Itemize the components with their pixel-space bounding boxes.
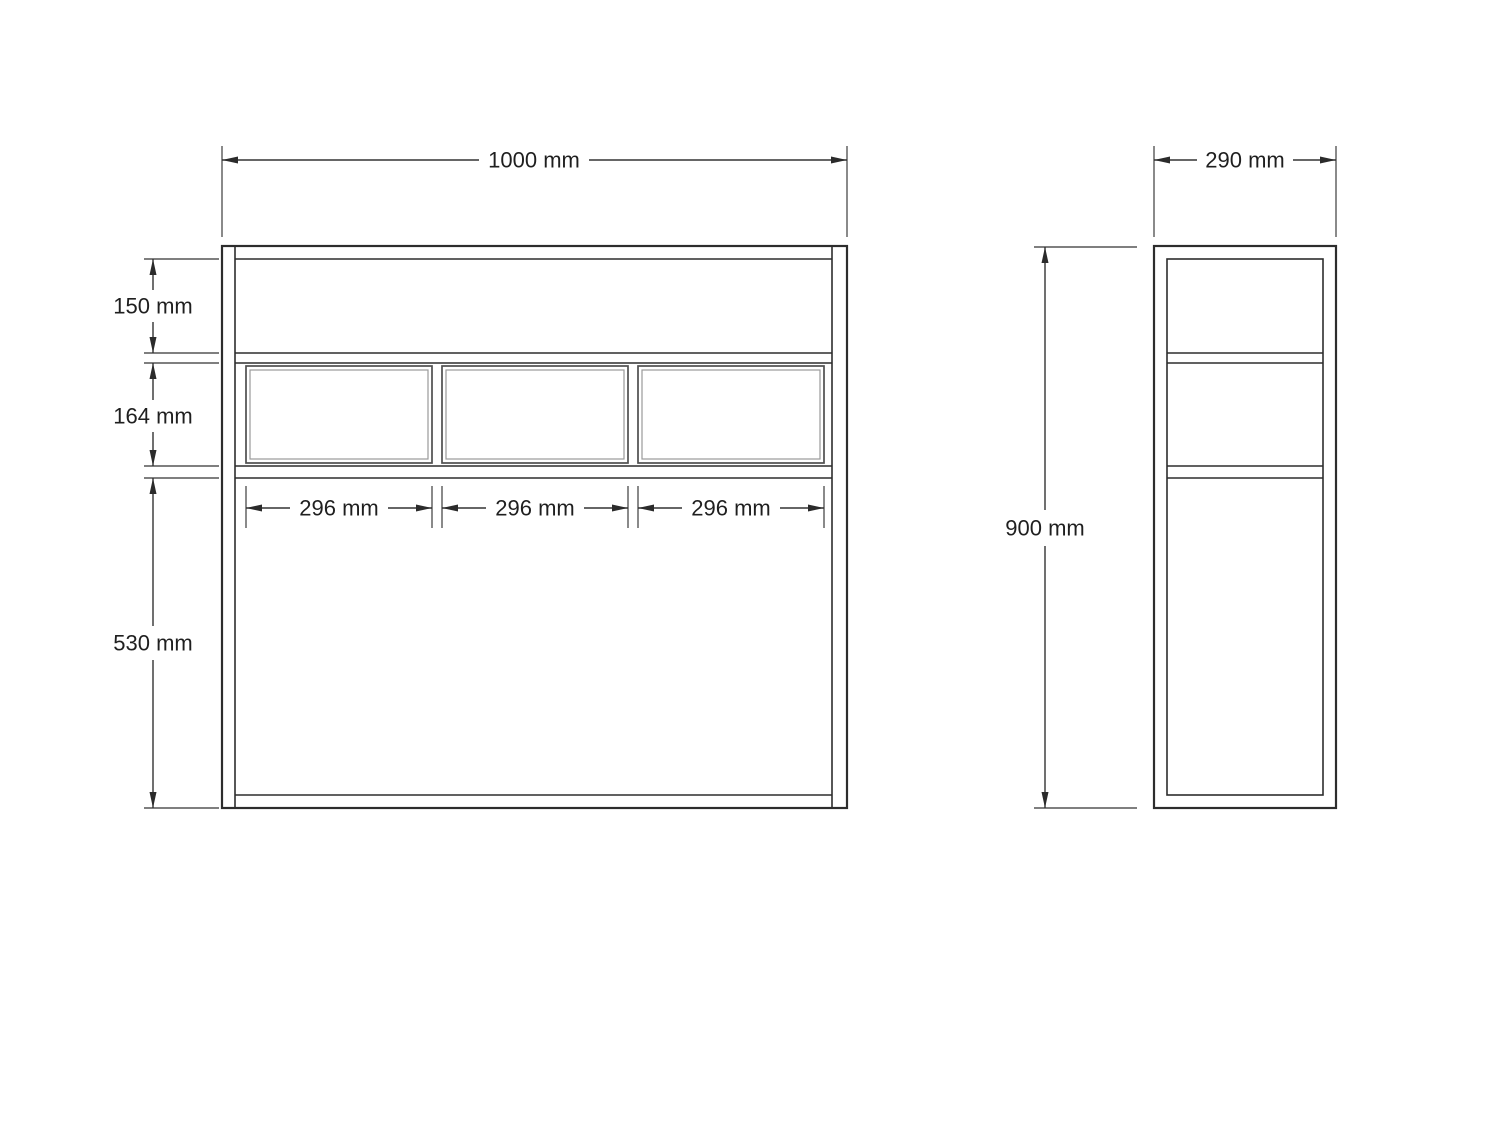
arrow-up-icon bbox=[1042, 247, 1049, 263]
front-view-cabinet bbox=[222, 246, 847, 808]
dim-label-drawer-2: 296 mm bbox=[495, 496, 574, 521]
arrow-left-icon bbox=[1154, 157, 1170, 164]
dim-label-side-height: 900 mm bbox=[1005, 516, 1084, 541]
drawer-2 bbox=[442, 366, 628, 463]
front-outer-frame bbox=[222, 246, 847, 808]
dim-label-section-530: 530 mm bbox=[113, 631, 192, 656]
drawer-3 bbox=[638, 366, 824, 463]
arrow-right-icon bbox=[1320, 157, 1336, 164]
side-view-cabinet bbox=[1154, 246, 1336, 808]
arrow-down-icon bbox=[150, 792, 157, 808]
dim-label-section-164: 164 mm bbox=[113, 404, 192, 429]
front-view: 1000 mm 150 mm 164 mm bbox=[113, 146, 847, 808]
arrow-down-icon bbox=[1042, 792, 1049, 808]
furniture-dimension-drawing: 1000 mm 150 mm 164 mm bbox=[0, 0, 1500, 1125]
technical-drawing-page: 1000 mm 150 mm 164 mm bbox=[0, 0, 1500, 1125]
dim-section-530: 530 mm bbox=[113, 478, 192, 808]
dim-side-height: 900 mm bbox=[1005, 247, 1137, 808]
dim-label-section-150: 150 mm bbox=[113, 294, 192, 319]
side-outer-frame bbox=[1154, 246, 1336, 808]
drawer-3-front bbox=[638, 366, 824, 463]
dim-label-side-depth: 290 mm bbox=[1205, 148, 1284, 173]
arrow-left-icon bbox=[222, 157, 238, 164]
arrow-up-icon bbox=[150, 259, 157, 275]
dim-front-overall-width: 1000 mm bbox=[222, 146, 847, 237]
arrow-up-icon bbox=[150, 363, 157, 379]
dim-label-front-width: 1000 mm bbox=[488, 148, 580, 173]
dim-side-depth: 290 mm bbox=[1154, 146, 1336, 237]
arrow-down-icon bbox=[150, 337, 157, 353]
dim-label-drawer-1: 296 mm bbox=[299, 496, 378, 521]
dim-section-164: 164 mm bbox=[113, 363, 192, 466]
drawer-1 bbox=[246, 366, 432, 463]
side-view: 290 mm 900 mm bbox=[1005, 146, 1336, 808]
dim-label-drawer-3: 296 mm bbox=[691, 496, 770, 521]
dim-section-150: 150 mm bbox=[113, 259, 192, 353]
drawer-2-front bbox=[442, 366, 628, 463]
arrow-up-icon bbox=[150, 478, 157, 494]
dim-front-height-sections: 150 mm 164 mm 530 mm bbox=[113, 259, 219, 808]
drawer-1-front bbox=[246, 366, 432, 463]
arrow-right-icon bbox=[831, 157, 847, 164]
arrow-down-icon bbox=[150, 450, 157, 466]
